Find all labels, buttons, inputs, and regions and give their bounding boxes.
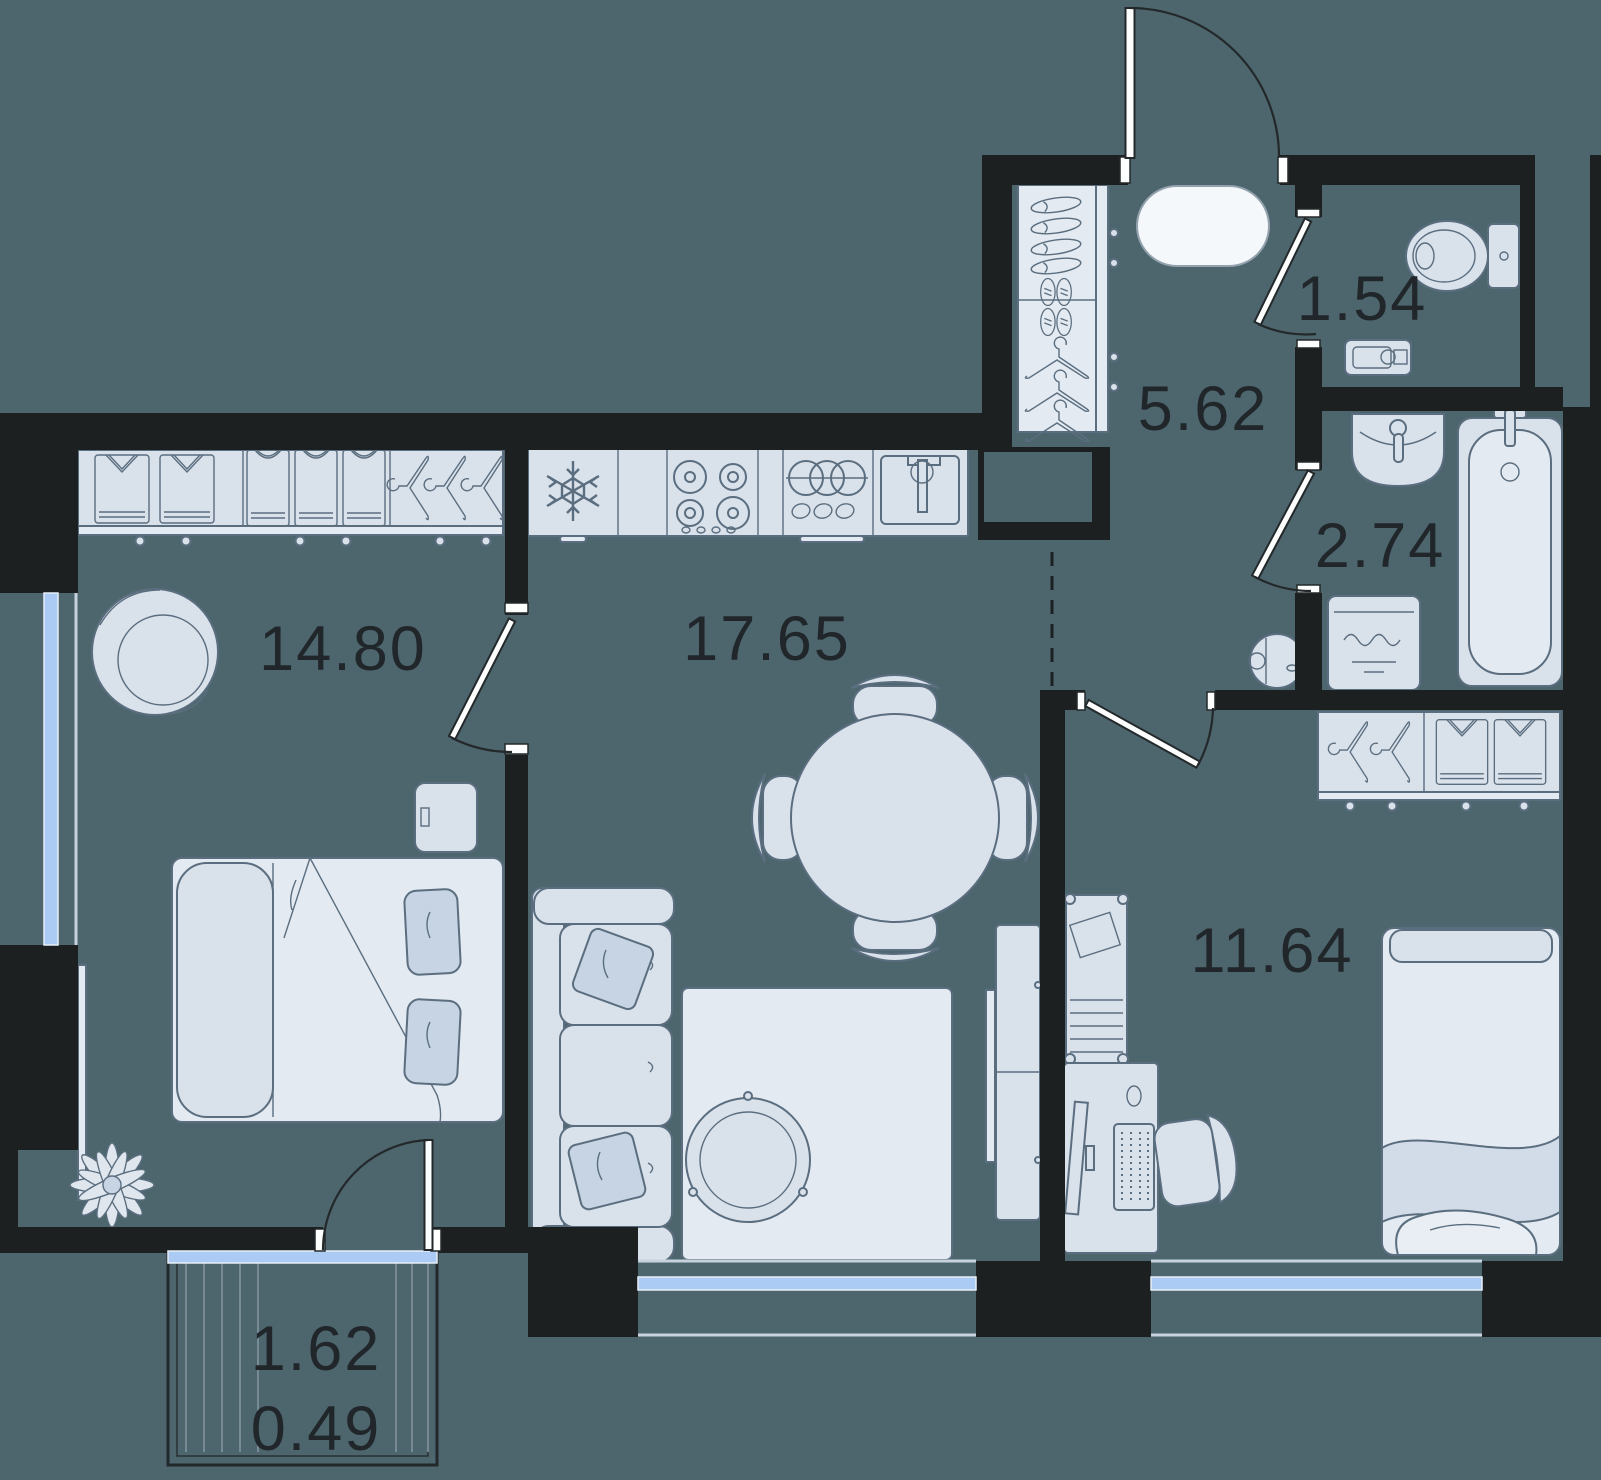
wc-shelf <box>1345 340 1411 375</box>
window-bedroom-left <box>44 593 76 945</box>
balcony-glazing <box>168 1251 437 1263</box>
blanket <box>1382 1136 1560 1222</box>
room-label-hallway: 5.62 <box>1138 374 1269 444</box>
office-chair <box>1152 1112 1241 1210</box>
window-bedroom2 <box>1151 1261 1482 1335</box>
oval-rug-shape <box>1137 186 1269 266</box>
dining-table-group <box>752 675 1038 961</box>
balcony-label-area-reduced: 0.49 <box>251 1394 382 1464</box>
nightstand <box>415 783 477 852</box>
bedroom-wardrobe <box>78 450 503 546</box>
armchair <box>92 589 218 715</box>
window-living-room <box>638 1261 976 1335</box>
shoe-rack <box>1018 185 1118 441</box>
bookshelf <box>1065 894 1128 1064</box>
bedroom2-wardrobe <box>1318 712 1560 811</box>
room-label-bathroom: 2.74 <box>1315 511 1446 581</box>
kitchen-counter <box>528 448 968 542</box>
dining-table <box>791 714 999 922</box>
room-label-bedroom: 14.80 <box>259 614 427 684</box>
washing-machine-icon <box>1328 596 1420 690</box>
wash-basin-icon <box>1352 414 1444 486</box>
floor-plan: 14.80 17.65 5.62 1.54 2.74 11.64 1.62 0.… <box>0 0 1601 1480</box>
desk <box>1064 1063 1158 1253</box>
bathtub-icon <box>1458 406 1562 686</box>
room-label-bedroom2: 11.64 <box>1191 916 1354 986</box>
keyboard-icon <box>1114 1124 1154 1210</box>
single-bed <box>1382 928 1560 1255</box>
room-label-kitchen-living: 17.65 <box>683 604 851 674</box>
entrance-door <box>1120 8 1288 183</box>
bathroom-door <box>1252 462 1320 593</box>
room-label-wc: 1.54 <box>1297 264 1428 334</box>
tv-icon <box>986 990 995 1162</box>
balcony-door <box>315 1140 441 1251</box>
plant-icon <box>70 1143 154 1227</box>
floor-plan-svg: 14.80 17.65 5.62 1.54 2.74 11.64 1.62 0.… <box>0 0 1601 1480</box>
bedroom-door <box>449 603 528 754</box>
tv-stand <box>986 925 1041 1220</box>
sofa <box>532 888 674 1262</box>
bedroom2-door <box>1077 692 1215 768</box>
balcony-label-area: 1.62 <box>251 1314 382 1384</box>
fridge-handle <box>560 536 586 542</box>
double-bed <box>172 858 503 1122</box>
